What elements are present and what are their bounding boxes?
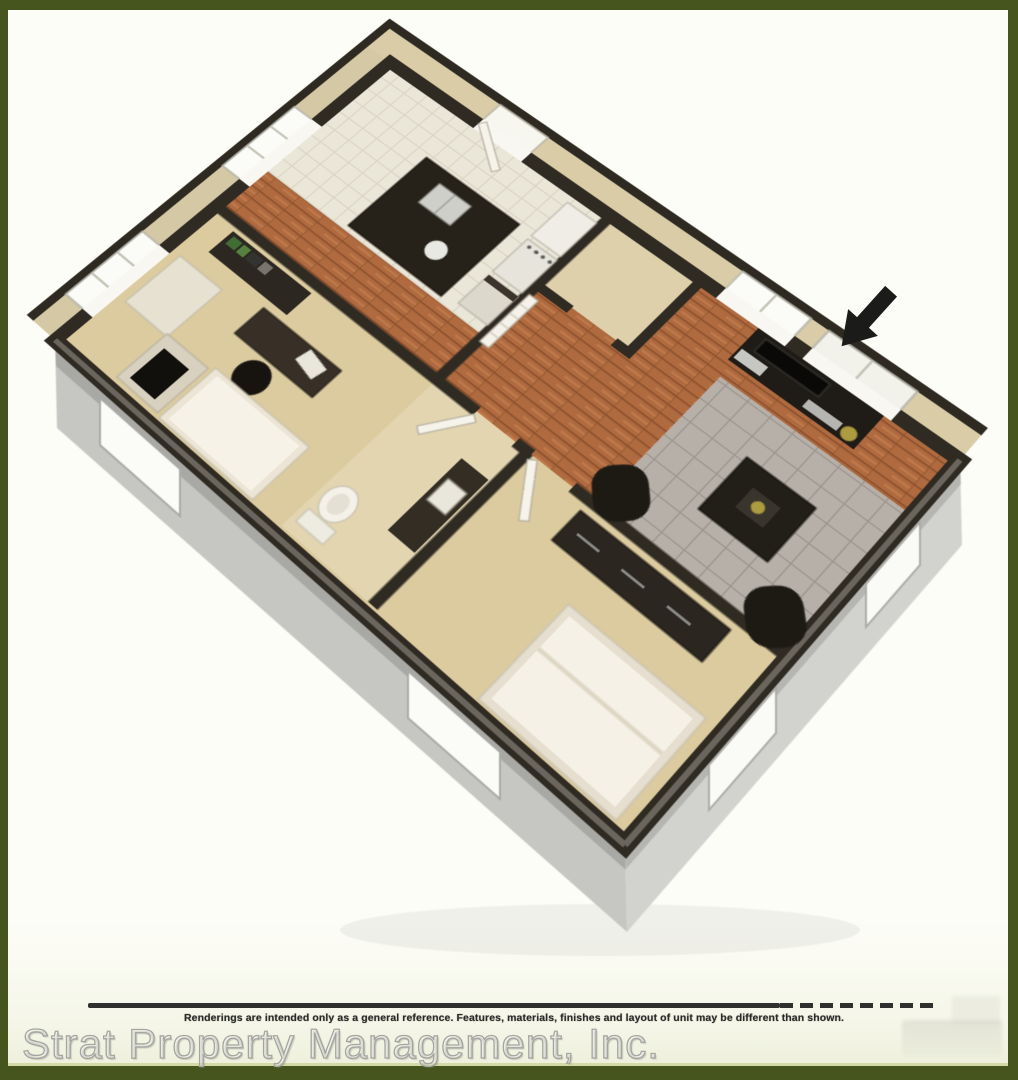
faint-logo-watermark <box>902 1020 1002 1056</box>
company-watermark: Strat Property Management, Inc. <box>22 1020 660 1068</box>
floor-plan-scene <box>0 0 1018 1080</box>
faint-logo-watermark-2 <box>952 996 1000 1024</box>
footer-rule-dashed <box>780 1003 940 1008</box>
footer-rule <box>88 1003 780 1008</box>
annotations <box>0 0 1018 1080</box>
entry-arrow-icon <box>827 278 906 360</box>
